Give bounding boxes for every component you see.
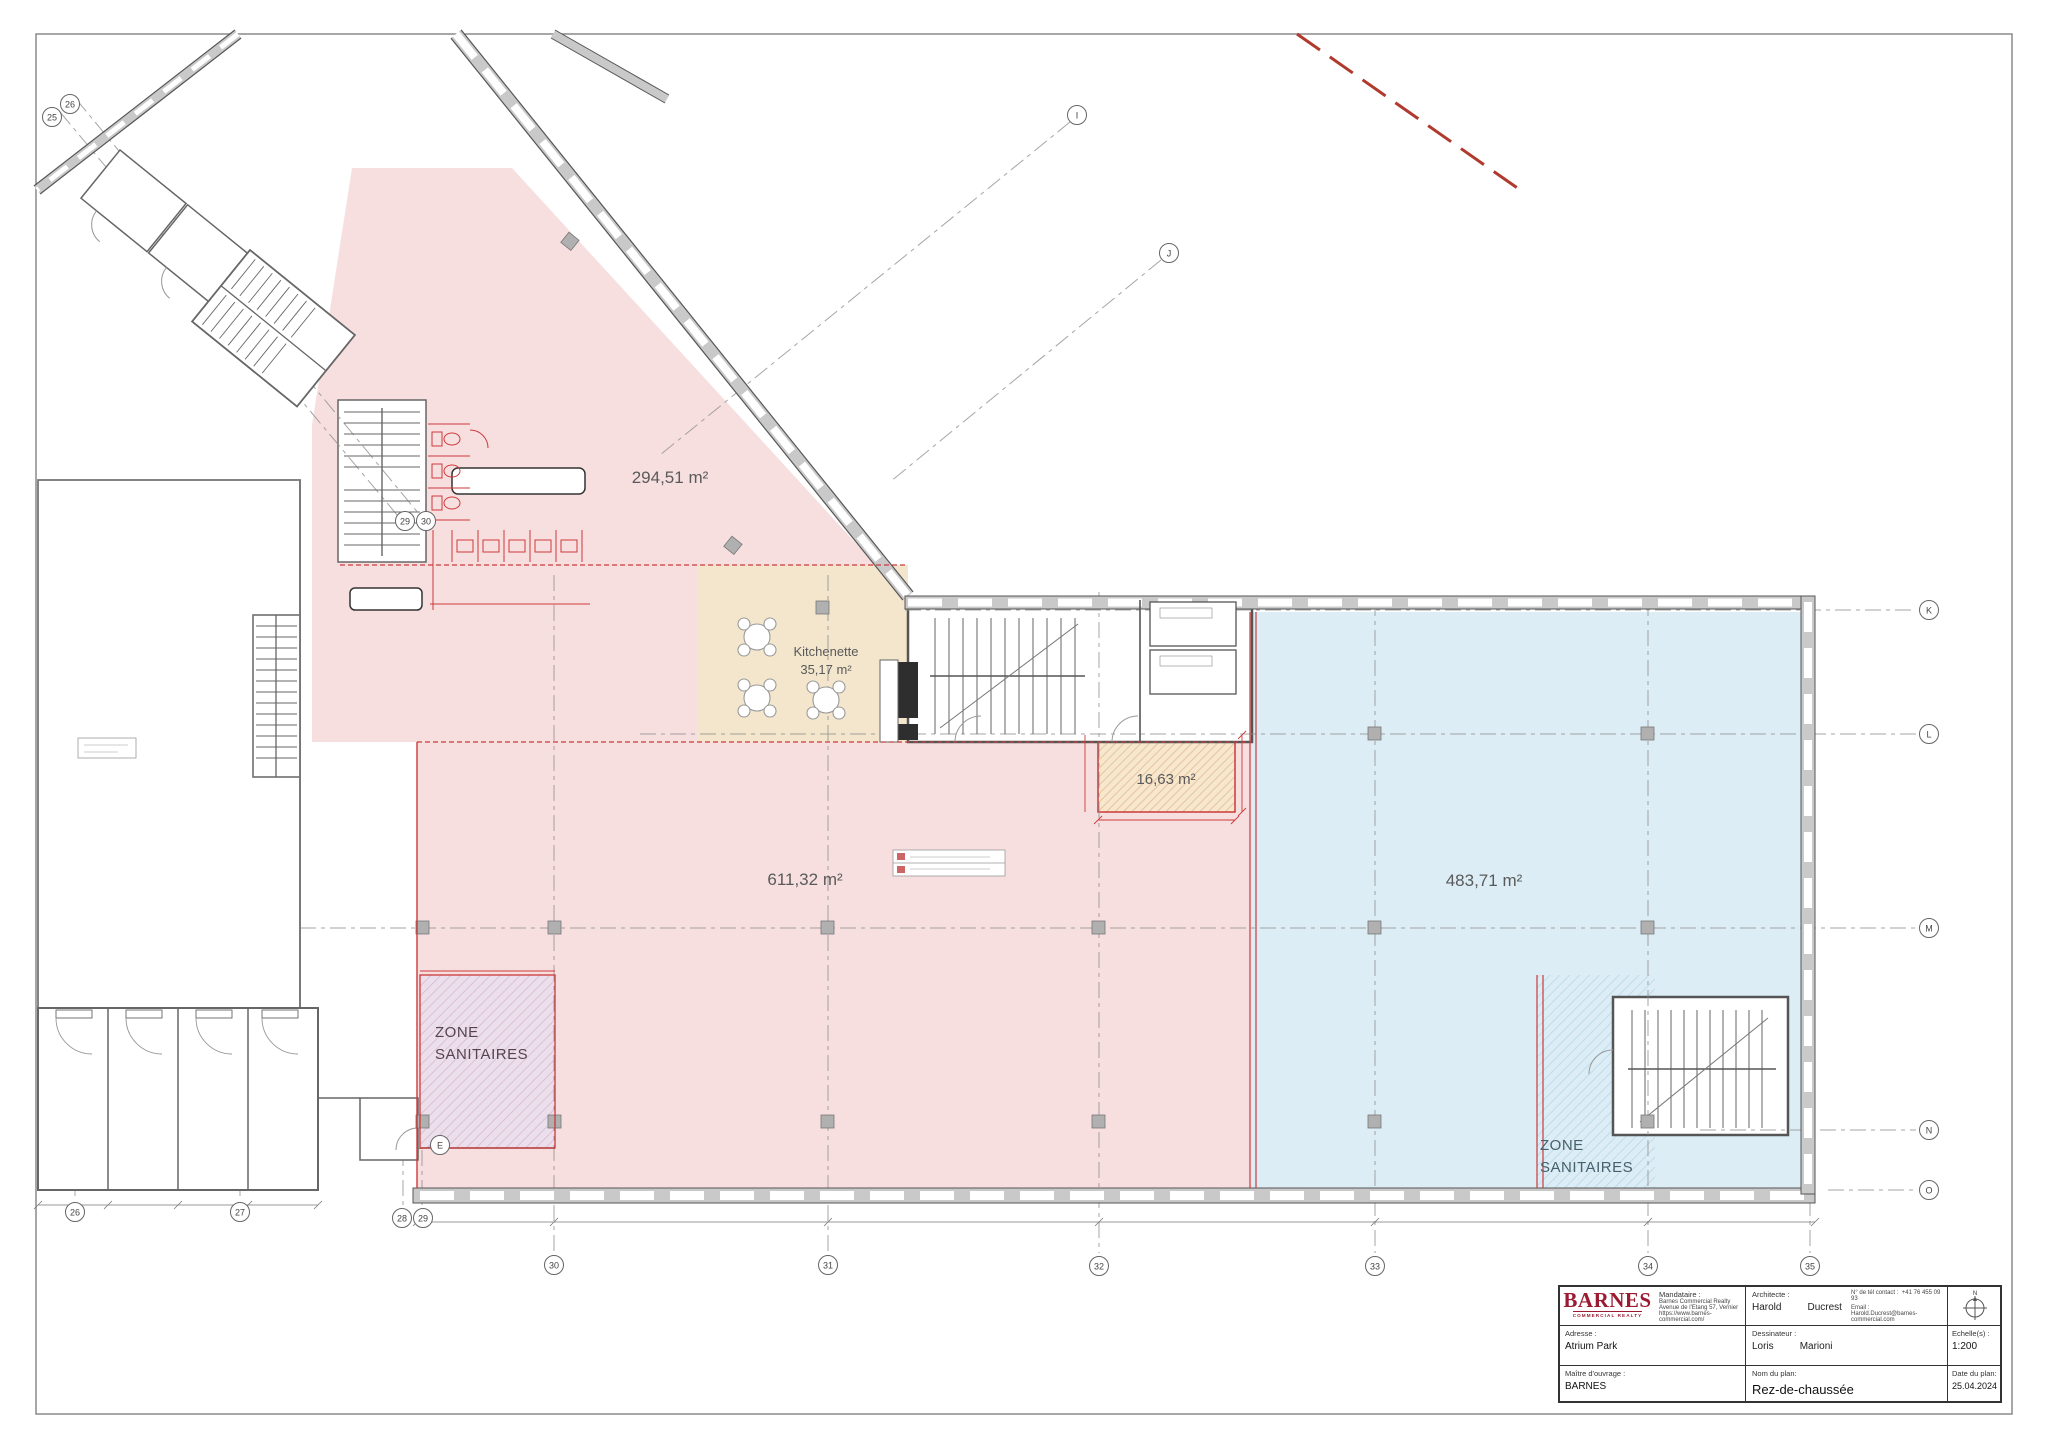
wc-counter	[452, 468, 585, 494]
svg-text:E: E	[437, 1141, 443, 1151]
grid-bubble-29-mid: 29	[396, 512, 415, 531]
logo-cell: BARNES COMMERCIAL REALTY	[1560, 1287, 1655, 1325]
grid-bubble-31: 31	[819, 1256, 838, 1275]
svg-text:26: 26	[65, 100, 75, 110]
label-zone-left-2: SANITAIRES	[435, 1046, 528, 1063]
svg-text:34: 34	[1643, 1262, 1653, 1272]
date-cell: Date du plan: 25.04.2024	[1947, 1365, 2002, 1401]
floor-plan-drawing: 294,51 m² Kitchenette 35,17 m² 611,32 m²…	[0, 0, 2048, 1449]
label-area-611: 611,32 m²	[767, 870, 843, 889]
shaft-slab	[898, 662, 918, 718]
svg-text:26: 26	[70, 1208, 80, 1218]
echelle-cell: Echelle(s) : 1:200	[1947, 1325, 2002, 1365]
east-facade-wall	[1801, 596, 1815, 1194]
mandataire-label: Mandataire :	[1659, 1290, 1741, 1299]
svg-text:28: 28	[397, 1214, 407, 1224]
table	[807, 681, 845, 719]
svg-text:35: 35	[1805, 1262, 1815, 1272]
grid-bubble-25: 25	[43, 108, 62, 127]
mandataire-cell: Mandataire : Barnes Commercial Realty Av…	[1655, 1287, 1745, 1325]
north-cell: N	[1947, 1287, 2002, 1325]
grid-bubble-29-bottom: 29	[414, 1209, 433, 1228]
grid-bubble-34: 34	[1639, 1257, 1658, 1276]
bottom-unit-row	[38, 1008, 318, 1190]
grid-bubble-28: 28	[393, 1209, 412, 1228]
label-kitchenette: Kitchenette	[793, 644, 858, 659]
phone-label: N° de tél contact :	[1851, 1290, 1898, 1296]
room-stair	[253, 615, 300, 777]
label-kitchenette-area: 35,17 m²	[800, 662, 852, 677]
label-area-16: 16,63 m²	[1136, 771, 1195, 788]
grid-bubble-30-mid: 30	[417, 512, 436, 531]
svg-text:30: 30	[549, 1261, 559, 1271]
floor-plan-sheet: 294,51 m² Kitchenette 35,17 m² 611,32 m²…	[0, 0, 2048, 1449]
mandataire-line3: https://www.barnes-commercial.com/	[1659, 1311, 1741, 1323]
wc-counter-small	[350, 588, 422, 610]
svg-text:30: 30	[421, 517, 431, 527]
shaft-slab-small	[898, 724, 918, 740]
svg-text:25: 25	[47, 113, 57, 123]
label-area-294: 294,51 m²	[632, 468, 709, 487]
grid-bubble-O: O	[1920, 1181, 1939, 1200]
table	[738, 679, 776, 717]
dessinateur-cell: Dessinateur : LorisMarioni	[1745, 1325, 1947, 1365]
dessinateur-last: Marioni	[1800, 1341, 1833, 1352]
svg-text:32: 32	[1094, 1262, 1104, 1272]
north-facade-wall	[905, 596, 1812, 609]
architecte-name: HaroldDucrest	[1752, 1303, 1842, 1312]
room-label-box	[78, 738, 136, 758]
architecte-cell: Architecte : HaroldDucrest N° de tél con…	[1745, 1287, 1947, 1325]
kitchen-counter	[880, 660, 898, 742]
label-zone-right-2: SANITAIRES	[1540, 1159, 1633, 1176]
svg-text:29: 29	[418, 1214, 428, 1224]
svg-text:K: K	[1926, 606, 1932, 616]
svg-text:L: L	[1926, 730, 1931, 740]
grid-bubble-26-top: 26	[61, 95, 80, 114]
adresse-cell: Adresse : Atrium Park	[1560, 1325, 1745, 1365]
label-zone-right-1: ZONE	[1540, 1137, 1584, 1154]
dessinateur-name: LorisMarioni	[1752, 1342, 1832, 1351]
adresse-label: Adresse :	[1565, 1329, 1740, 1338]
date-label: Date du plan:	[1952, 1369, 1998, 1378]
svg-text:N: N	[1926, 1126, 1933, 1136]
maitre-cell: Maître d'ouvrage : BARNES	[1560, 1365, 1745, 1401]
grid-bubble-L: L	[1920, 725, 1939, 744]
north-compass-icon: N	[1958, 1287, 1992, 1323]
grid-bubble-30: 30	[545, 1256, 564, 1275]
email-value: Harold.Ducrest@barnes-commercial.com	[1851, 1311, 1945, 1323]
svg-text:I: I	[1076, 111, 1079, 121]
svg-text:29: 29	[400, 517, 410, 527]
plan-name-cell: Nom du plan: Rez-de-chaussée	[1745, 1365, 1947, 1401]
grid-bubble-32: 32	[1090, 1257, 1109, 1276]
title-block: BARNES COMMERCIAL REALTY Mandataire : Ba…	[1558, 1285, 2002, 1403]
svg-text:33: 33	[1370, 1262, 1380, 1272]
grid-bubble-E: E	[431, 1136, 450, 1155]
architecte-last: Ducrest	[1807, 1302, 1841, 1313]
label-area-483: 483,71 m²	[1446, 871, 1523, 890]
grid-bubble-35: 35	[1801, 1257, 1820, 1276]
grid-bubble-M: M	[1920, 919, 1939, 938]
grid-bubble-K: K	[1920, 601, 1939, 620]
plan-name-value: Rez-de-chaussée	[1752, 1382, 1941, 1397]
dessinateur-label: Dessinateur :	[1752, 1329, 1941, 1338]
grid-bubble-N: N	[1920, 1121, 1939, 1140]
south-facade-wall	[413, 1188, 1815, 1203]
table	[738, 618, 776, 656]
svg-text:O: O	[1925, 1186, 1932, 1196]
svg-text:31: 31	[823, 1261, 833, 1271]
adresse-value: Atrium Park	[1565, 1341, 1740, 1352]
barnes-logo: BARNES	[1563, 1288, 1651, 1312]
grid-bubble-27: 27	[231, 1203, 250, 1222]
dessinateur-first: Loris	[1752, 1341, 1774, 1352]
date-value: 25.04.2024	[1952, 1381, 1998, 1391]
svg-text:J: J	[1167, 249, 1172, 259]
grid-bubble-I: I	[1068, 106, 1087, 125]
svg-text:27: 27	[235, 1208, 245, 1218]
architecte-first: Harold	[1752, 1302, 1781, 1313]
echelle-value: 1:200	[1952, 1341, 1998, 1352]
barnes-logo-subtitle: COMMERCIAL REALTY	[1573, 1311, 1643, 1318]
svg-text:M: M	[1925, 924, 1933, 934]
grid-bubble-J: J	[1160, 244, 1179, 263]
contact-info: N° de tél contact : +41 76 455 09 93 Ema…	[1851, 1290, 1945, 1323]
maitre-value: BARNES	[1565, 1381, 1740, 1392]
label-zone-left-1: ZONE	[435, 1024, 479, 1041]
maitre-label: Maître d'ouvrage :	[1565, 1369, 1740, 1378]
grid-bubble-26-bottom: 26	[66, 1203, 85, 1222]
grid-bubble-33: 33	[1366, 1257, 1385, 1276]
echelle-label: Echelle(s) :	[1952, 1329, 1998, 1338]
mini-legend-box	[893, 850, 1005, 876]
plan-name-label: Nom du plan:	[1752, 1369, 1941, 1378]
